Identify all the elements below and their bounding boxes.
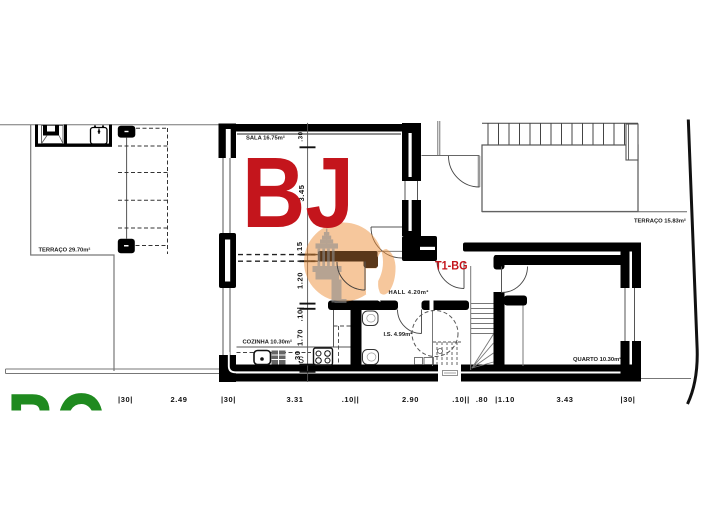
svg-text:|30|: |30| xyxy=(621,395,636,404)
svg-text:.30: .30 xyxy=(293,350,302,362)
svg-text:T1-BG: T1-BG xyxy=(435,259,468,273)
svg-text:.10||: .10|| xyxy=(342,395,360,404)
svg-text:COZINHA 10.30m²: COZINHA 10.30m² xyxy=(243,339,292,346)
svg-text:3.43: 3.43 xyxy=(557,395,574,404)
svg-text:|30|: |30| xyxy=(221,395,236,404)
svg-text:BJ: BJ xyxy=(242,137,354,249)
svg-text:HALL 4.20m²: HALL 4.20m² xyxy=(389,289,429,296)
svg-text:1.70: 1.70 xyxy=(296,329,305,346)
svg-text:1.20: 1.20 xyxy=(296,272,305,289)
svg-text:|30|: |30| xyxy=(118,395,133,404)
svg-text:QUARTO 10.30m²: QUARTO 10.30m² xyxy=(573,356,621,363)
svg-text:.10||: .10|| xyxy=(452,395,470,404)
svg-text:TERRAÇO 29.70m²: TERRAÇO 29.70m² xyxy=(39,247,91,254)
svg-text:2.49: 2.49 xyxy=(171,395,188,404)
svg-text:I.S. 4.99m²: I.S. 4.99m² xyxy=(384,331,413,338)
svg-text:.10|: .10| xyxy=(296,307,305,322)
svg-text:.80: .80 xyxy=(476,395,488,404)
svg-text:2.90: 2.90 xyxy=(402,395,419,404)
svg-text:|1.10: |1.10 xyxy=(495,395,515,404)
svg-text:3.31: 3.31 xyxy=(287,395,304,404)
svg-text:TERRAÇO 15.83m²: TERRAÇO 15.83m² xyxy=(634,218,686,225)
